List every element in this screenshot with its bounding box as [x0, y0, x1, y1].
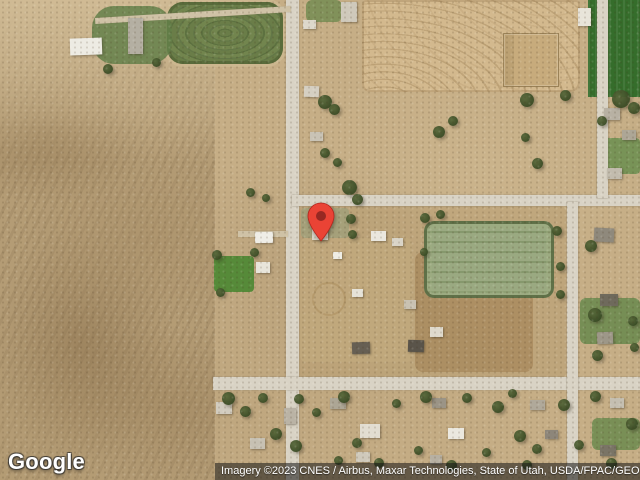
tree [270, 428, 282, 440]
building [600, 445, 616, 456]
round-pen [312, 282, 346, 316]
tree [352, 438, 362, 448]
dark-green-crop-field [588, 0, 640, 97]
barn-white [70, 37, 103, 55]
building [530, 400, 545, 410]
tree [532, 158, 543, 169]
tree [628, 316, 638, 326]
tree [333, 158, 342, 167]
tree [630, 343, 639, 352]
tree [342, 180, 357, 195]
tree [592, 350, 603, 361]
lawn-top-road [306, 0, 342, 22]
building [430, 327, 443, 337]
tree [556, 262, 565, 271]
tree [352, 194, 363, 205]
building [256, 262, 270, 273]
building [597, 332, 613, 345]
tree [508, 389, 517, 398]
building [392, 238, 403, 246]
tree [556, 290, 565, 299]
tree [290, 440, 302, 452]
tree [338, 391, 350, 403]
tree [552, 226, 562, 236]
building [578, 8, 591, 26]
road-east-west-north [292, 195, 640, 206]
tree [246, 188, 255, 197]
building [352, 342, 370, 355]
sports-field [424, 221, 554, 298]
tree [348, 230, 357, 239]
tree [212, 250, 222, 260]
building [255, 232, 273, 243]
tree [420, 391, 432, 403]
building [310, 132, 323, 141]
tree [346, 214, 356, 224]
tree [240, 406, 251, 417]
pin-inner-dot [316, 211, 326, 221]
barn-gray [128, 18, 143, 54]
corral-pen [503, 33, 559, 87]
tree [520, 93, 534, 107]
tree [392, 399, 401, 408]
tree [590, 391, 601, 402]
tree [626, 418, 638, 430]
tree [258, 393, 268, 403]
satellite-map[interactable]: Google Imagery ©2023 CNES / Airbus, Maxa… [0, 0, 640, 480]
building [284, 408, 296, 424]
tree [420, 248, 428, 256]
road-north-south-east [567, 202, 578, 480]
tree [588, 308, 602, 322]
tree [262, 194, 270, 202]
building [304, 86, 319, 98]
building [622, 130, 636, 140]
building [607, 168, 622, 179]
building [610, 398, 624, 408]
building [303, 20, 316, 29]
building [448, 428, 464, 439]
building [360, 424, 380, 438]
building [404, 300, 416, 309]
tree [414, 446, 423, 455]
tree [585, 240, 597, 252]
google-logo[interactable]: Google [8, 449, 85, 475]
tree [216, 288, 225, 297]
building [356, 452, 370, 462]
building [333, 252, 342, 259]
building [352, 289, 363, 297]
lawn-house-west [214, 256, 254, 292]
map-attribution: Imagery ©2023 CNES / Airbus, Maxar Techn… [215, 463, 640, 480]
tree [448, 116, 458, 126]
pin-body [308, 203, 334, 241]
tree [628, 102, 640, 114]
tree [222, 392, 235, 405]
tree [312, 408, 321, 417]
tree [433, 126, 445, 138]
building [545, 430, 558, 439]
tree [574, 440, 584, 450]
building [600, 294, 618, 306]
tree [103, 64, 113, 74]
building [408, 340, 424, 353]
tree [294, 394, 304, 404]
location-marker[interactable] [307, 202, 335, 242]
tree [462, 393, 472, 403]
tree [320, 148, 330, 158]
tree [329, 104, 340, 115]
building [594, 227, 615, 242]
building [371, 231, 386, 241]
tree [420, 213, 430, 223]
tree [250, 248, 259, 257]
tree [560, 90, 571, 101]
tree [558, 399, 570, 411]
tree [436, 210, 445, 219]
building [432, 398, 446, 408]
tree [597, 116, 607, 126]
building [341, 2, 357, 22]
pin-icon [307, 202, 335, 242]
tree [152, 58, 161, 67]
tree [482, 448, 491, 457]
tree [532, 444, 542, 454]
tree [492, 401, 504, 413]
building [250, 438, 265, 449]
tree [514, 430, 526, 442]
tree [521, 133, 530, 142]
